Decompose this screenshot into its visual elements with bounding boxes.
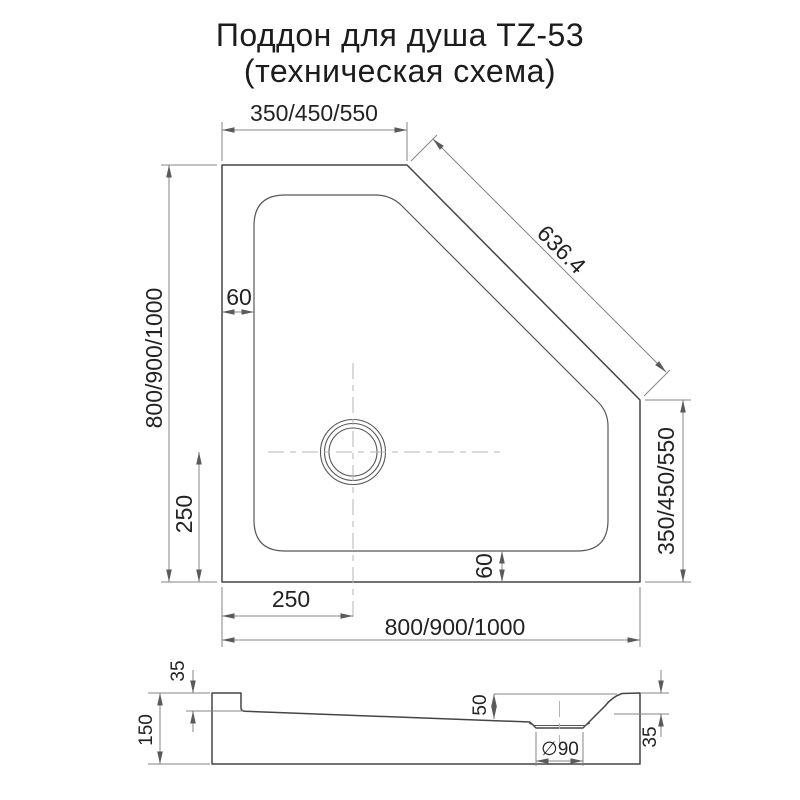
section-view: 35 150 50 ∅90: [136, 660, 669, 766]
dim-drain-offset-left-label: 250: [171, 495, 197, 533]
dim-rim-left-label: 35: [168, 660, 189, 681]
tray-outer-outline: [222, 165, 640, 582]
dimension-wall-bottom: 60: [471, 551, 502, 582]
dimension-rim-left: 35: [168, 660, 243, 732]
dim-bottom-width-label: 800/900/1000: [385, 614, 526, 640]
dim-diagonal-label: 636.4: [532, 220, 591, 279]
technical-drawing-sheet: Поддон для душа TZ-53 (техническая схема…: [0, 0, 800, 800]
dim-top-width-label: 350/450/550: [250, 100, 378, 126]
dim-section-height-label: 150: [136, 714, 157, 746]
dim-wall-bottom-label: 60: [471, 553, 497, 579]
dimension-top-width: 350/450/550: [222, 100, 407, 161]
dim-left-height-label: 800/900/1000: [141, 288, 167, 429]
dimension-drain-offset-bottom: 250: [222, 586, 353, 616]
dimension-section-height: 150: [136, 693, 210, 764]
dim-right-height-label: 350/450/550: [653, 427, 679, 555]
dim-drain-diameter-label: ∅90: [541, 739, 579, 760]
dimension-rim-right: 35: [614, 670, 669, 748]
dimension-diagonal: 636.4: [411, 135, 670, 396]
dim-drain-offset-bottom-label: 250: [272, 586, 310, 612]
dim-wall-top-label: 60: [226, 284, 252, 310]
dimension-right-height: 350/450/550: [645, 400, 691, 582]
dimension-wall-top: 60: [222, 284, 254, 312]
drawing-canvas: 350/450/550 636.4 800/900/1000: [0, 0, 800, 800]
dim-basin-depth-label: 50: [470, 694, 491, 715]
dim-rim-right-label: 35: [640, 726, 661, 747]
plan-view: 350/450/550 636.4 800/900/1000: [141, 100, 691, 647]
dimension-drain-offset-left: 250: [171, 452, 199, 582]
